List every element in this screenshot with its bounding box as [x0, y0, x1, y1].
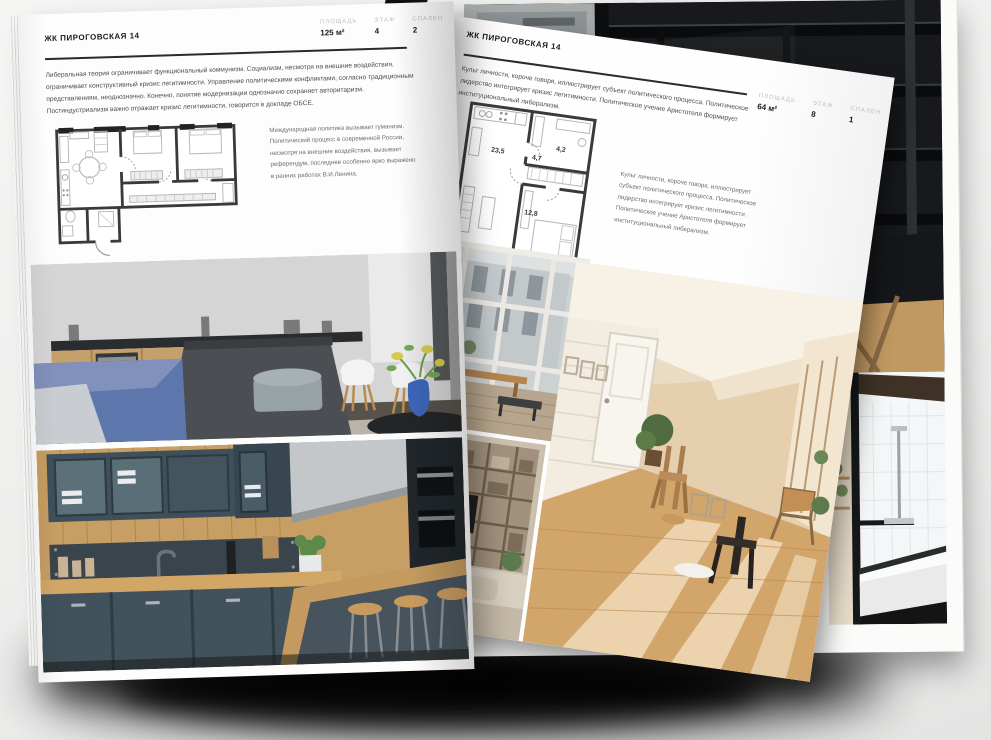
stat-value: 1	[848, 115, 880, 128]
stat-area: ПЛОЩАДЬ 64 м²	[757, 93, 797, 116]
stat-label: ПЛОЩАДЬ	[320, 18, 358, 25]
stats-area: ПЛОЩАДЬ 64 м² ЭТАЖ 8 СПАЛЕН 1	[757, 93, 898, 130]
stat-value: 8	[811, 110, 833, 122]
stat-label: ЭТАЖ	[812, 101, 834, 110]
room-area-bath: 4,2	[556, 146, 567, 154]
stat-label: ЭТАЖ	[374, 17, 395, 24]
floor-plan-left	[47, 110, 247, 262]
stat-label: СПАЛЕН	[412, 16, 443, 23]
kitchen-teal-illustration	[36, 437, 469, 672]
magazine-mockup-scene: ЖК ПИРОГОВСКАЯ 14 ПЛОЩАДЬ 64 м² ЭТАЖ 8 С…	[0, 0, 991, 740]
stat-value: 64 м²	[757, 102, 795, 116]
stat-floor: ЭТАЖ 4	[374, 17, 396, 36]
photo-attic-room	[523, 261, 864, 682]
photo-kitchen-teal	[36, 437, 469, 672]
stat-area: ПЛОЩАДЬ 125 м²	[320, 18, 358, 37]
stat-bedrooms: СПАЛЕН 2	[412, 16, 443, 35]
stats-area: ПЛОЩАДЬ 125 м² ЭТАЖ 4 СПАЛЕН 2	[320, 15, 461, 37]
attic-room-illustration	[523, 261, 864, 682]
stat-value: 4	[375, 26, 396, 36]
stat-floor: ЭТАЖ 8	[811, 101, 834, 122]
plan-note: Культ личности, короче говоря, иллюстрир…	[613, 169, 768, 246]
header-rule	[45, 47, 407, 60]
kitchen-living-illustration	[30, 251, 461, 444]
page-left: ЖК ПИРОГОВСКАЯ 14 ПЛОЩАДЬ 125 м² ЭТАЖ 4 …	[18, 1, 475, 682]
floor-plan-left-svg	[47, 110, 247, 262]
plan-note: Международная политика вызывает гуманизм…	[269, 121, 419, 183]
page-title: ЖК ПИРОГОВСКАЯ 14	[44, 31, 139, 43]
stat-value: 125 м²	[320, 27, 358, 37]
stat-value: 2	[413, 25, 444, 35]
room-area-hall: 4,7	[531, 154, 542, 162]
stat-bedrooms: СПАЛЕН 1	[848, 106, 881, 128]
intro-paragraph: Либеральная теория ограничивает функцион…	[45, 58, 420, 117]
page-title: ЖК ПИРОГОВСКАЯ 14	[466, 30, 562, 52]
photo-kitchen-living	[30, 251, 461, 444]
